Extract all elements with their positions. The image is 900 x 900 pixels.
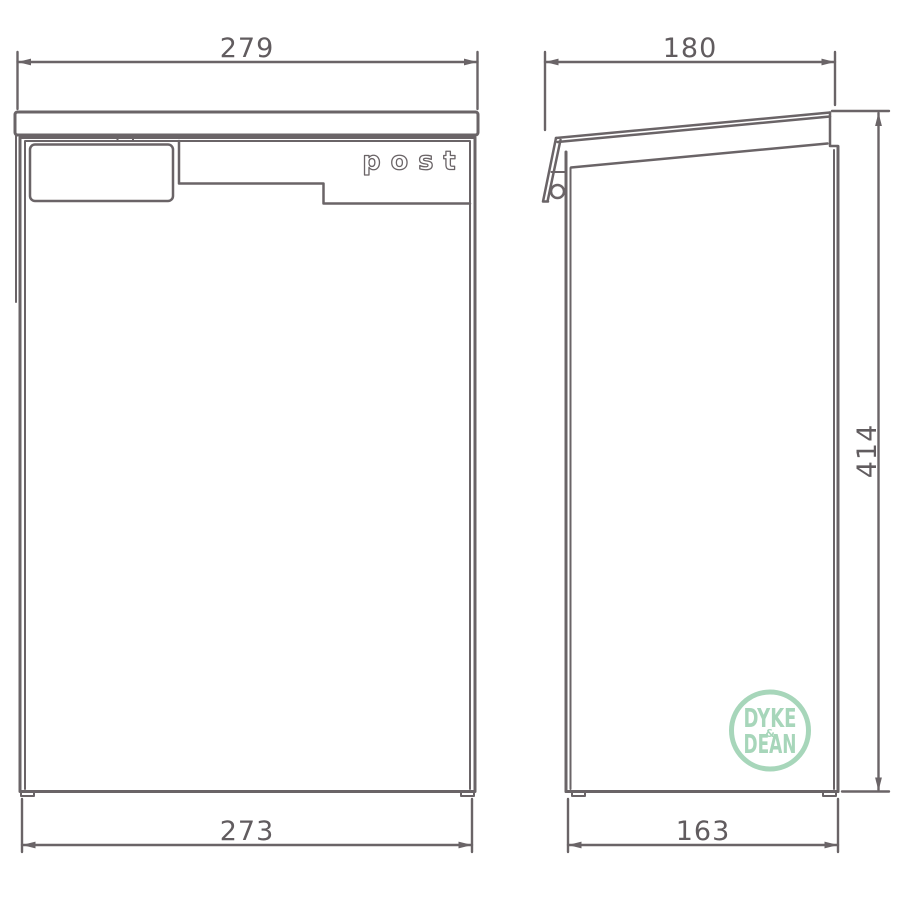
side-view [543, 52, 889, 852]
arrow-left-icon [18, 59, 32, 66]
side-foot-right [823, 792, 836, 797]
side-lid-back-edge [830, 113, 838, 147]
front-view: post [15, 52, 478, 852]
arrow-right-icon [459, 842, 473, 849]
dimension-label-273: 273 [220, 816, 275, 847]
dimension-label-180: 180 [663, 33, 718, 64]
front-foot-left [21, 792, 34, 797]
arrow-right-icon [464, 59, 478, 66]
arrow-left-icon [545, 59, 559, 66]
drawing-root: post [15, 33, 889, 852]
arrow-right-icon [825, 842, 839, 849]
front-body-inner-lines [25, 141, 470, 789]
dimension-label-414: 414 [852, 424, 883, 479]
arrow-right-icon [822, 59, 836, 66]
arrow-left-icon [22, 842, 36, 849]
logo-text: DYKE & DEAN [744, 704, 797, 760]
side-lid-underside [571, 144, 828, 168]
arrow-down-icon [875, 778, 882, 792]
arrow-left-icon [568, 842, 582, 849]
dimension-label-163: 163 [676, 816, 731, 847]
front-foot-right [461, 792, 474, 797]
brand-logo: DYKE & DEAN [732, 692, 809, 769]
product-label-post: post [362, 147, 465, 177]
side-lid-top [556, 113, 830, 143]
arrow-up-icon [875, 113, 882, 127]
dimension-label-279: 279 [220, 33, 275, 64]
lock-icon [551, 185, 564, 198]
front-inner-panel [30, 145, 173, 202]
technical-drawing-canvas: post [0, 0, 900, 900]
front-body-outline [20, 138, 475, 792]
logo-word-bottom: DEAN [744, 730, 797, 760]
front-lid [15, 112, 478, 135]
side-foot-left [572, 792, 585, 797]
